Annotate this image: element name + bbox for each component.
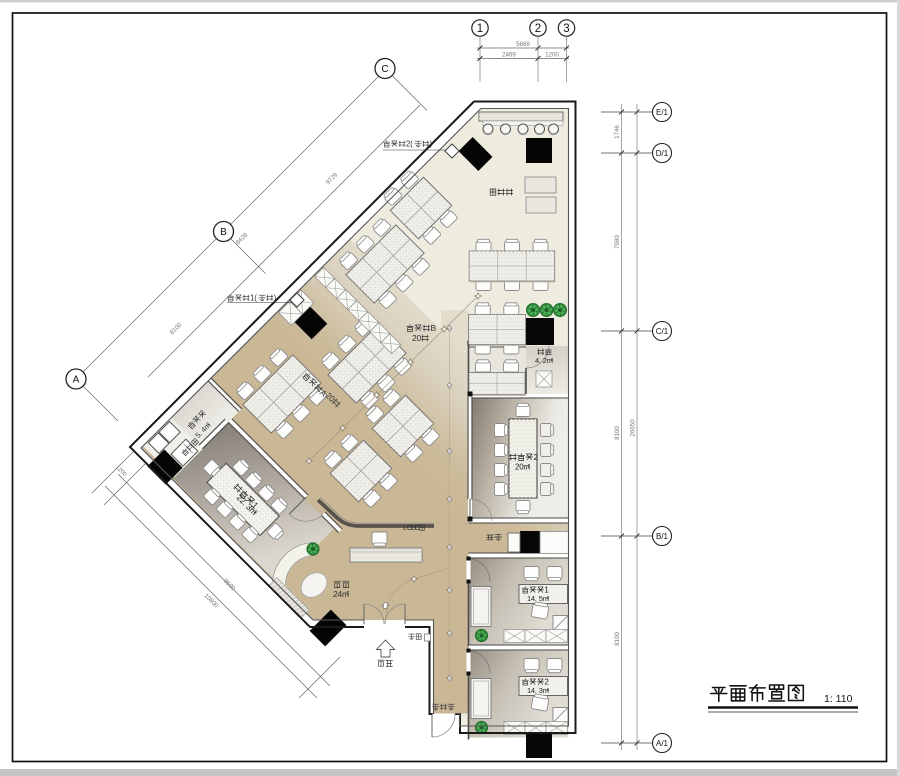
svg-text:1200: 1200 [545, 52, 559, 59]
svg-text:²: ² [346, 589, 349, 599]
svg-text:): ) [274, 294, 277, 303]
svg-text:(: ( [254, 294, 257, 303]
svg-text:3: 3 [563, 23, 569, 35]
svg-text:2469: 2469 [502, 52, 516, 59]
svg-text:B: B [431, 323, 437, 333]
svg-text:A/1: A/1 [656, 739, 669, 748]
svg-text:B: B [220, 227, 227, 238]
svg-text:D/1: D/1 [656, 149, 669, 158]
svg-text:2: 2 [534, 452, 539, 462]
svg-text:(: ( [410, 140, 413, 149]
svg-text:1: 1 [477, 23, 483, 35]
svg-text:0: 0 [417, 333, 422, 343]
svg-text:²: ² [528, 463, 531, 472]
svg-text:C/1: C/1 [656, 327, 669, 336]
svg-text:A: A [73, 375, 80, 386]
svg-text:C: C [381, 64, 388, 75]
svg-text:5669: 5669 [516, 41, 530, 48]
svg-text:): ) [430, 140, 433, 149]
svg-text:1: 110: 1: 110 [824, 693, 853, 705]
svg-text:8100: 8100 [614, 426, 621, 440]
svg-text:2: 2 [535, 23, 541, 35]
svg-text:26650: 26650 [630, 419, 637, 437]
svg-text:7980: 7980 [614, 235, 621, 249]
svg-text:B/1: B/1 [656, 532, 669, 541]
svg-text:.: . [539, 356, 541, 365]
svg-text:1746: 1746 [614, 125, 621, 139]
svg-text:E/1: E/1 [656, 108, 669, 117]
svg-text:8100: 8100 [614, 632, 621, 646]
